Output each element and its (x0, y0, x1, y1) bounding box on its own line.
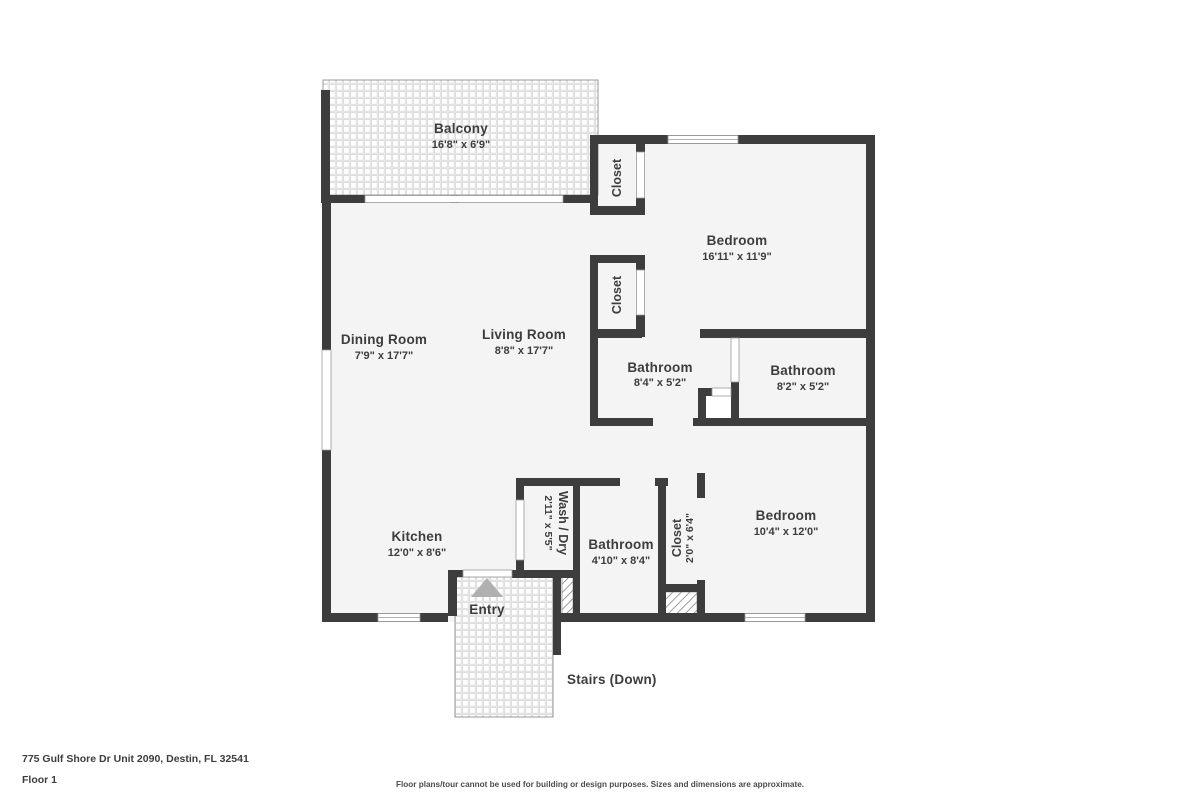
dims-kitchen: 12'0" x 8'6" (388, 547, 446, 559)
label-closet-bedroom: Closet (670, 518, 684, 557)
nook-interior (706, 396, 731, 418)
label-kitchen: Kitchen (392, 529, 443, 544)
label-closet-upper: Closet (610, 158, 624, 197)
label-stairs-down: Stairs (Down) (567, 672, 657, 687)
label-bedroom-top: Bedroom (707, 233, 768, 248)
label-closet-mid: Closet (610, 275, 624, 314)
bathroom-divider-door (731, 338, 739, 382)
label-bathroom-lower: Bathroom (588, 537, 653, 552)
label-wash-dry: Wash / Dry (556, 491, 570, 555)
disclaimer-text: Floor plans/tour cannot be used for buil… (396, 780, 804, 789)
dims-bedroom-bottom: 10'4" x 12'0" (754, 526, 819, 538)
floor-plan-page: Balcony 16'8" x 6'9" Dining Room 7'9" x … (0, 0, 1200, 800)
left-wall-window (322, 350, 331, 450)
hatched-void-closet (663, 592, 697, 616)
dims-wash-dry: 2'11" x 5'5" (542, 495, 554, 550)
closet-mid-door (637, 270, 645, 315)
washdry-door (516, 500, 524, 560)
label-living-room: Living Room (482, 327, 566, 342)
dims-bathroom-lower: 4'10" x 8'4" (592, 555, 650, 567)
dims-dining-room: 7'9" x 17'7" (355, 350, 413, 362)
label-balcony: Balcony (434, 121, 488, 136)
nook-door (712, 388, 731, 396)
dims-closet-bedroom: 2'0" x 6'4" (684, 513, 696, 563)
dims-living-room: 8'8" x 17'7" (495, 345, 553, 357)
label-dining-room: Dining Room (341, 332, 427, 347)
entry-door (463, 570, 512, 577)
closet-upper-door (637, 152, 645, 198)
dims-bathroom-left: 8'4" x 5'2" (634, 377, 686, 389)
hatched-void-entry (562, 577, 573, 616)
address-text: 775 Gulf Shore Dr Unit 2090, Destin, FL … (22, 753, 249, 765)
label-entry: Entry (469, 602, 505, 617)
dims-balcony: 16'8" x 6'9" (432, 139, 490, 151)
label-bedroom-bottom: Bedroom (756, 508, 817, 523)
dims-bathroom-right: 8'2" x 5'2" (777, 381, 829, 393)
room-entry-stairs (455, 577, 553, 717)
balcony-slider-window (365, 196, 563, 203)
label-bathroom-left: Bathroom (627, 360, 692, 375)
dims-bedroom-top: 16'11" x 11'9" (702, 251, 772, 263)
floor-label: Floor 1 (22, 774, 57, 786)
room-balcony (323, 80, 598, 195)
label-bathroom-right: Bathroom (770, 363, 835, 378)
floor-plan-canvas: Balcony 16'8" x 6'9" Dining Room 7'9" x … (0, 0, 1200, 800)
